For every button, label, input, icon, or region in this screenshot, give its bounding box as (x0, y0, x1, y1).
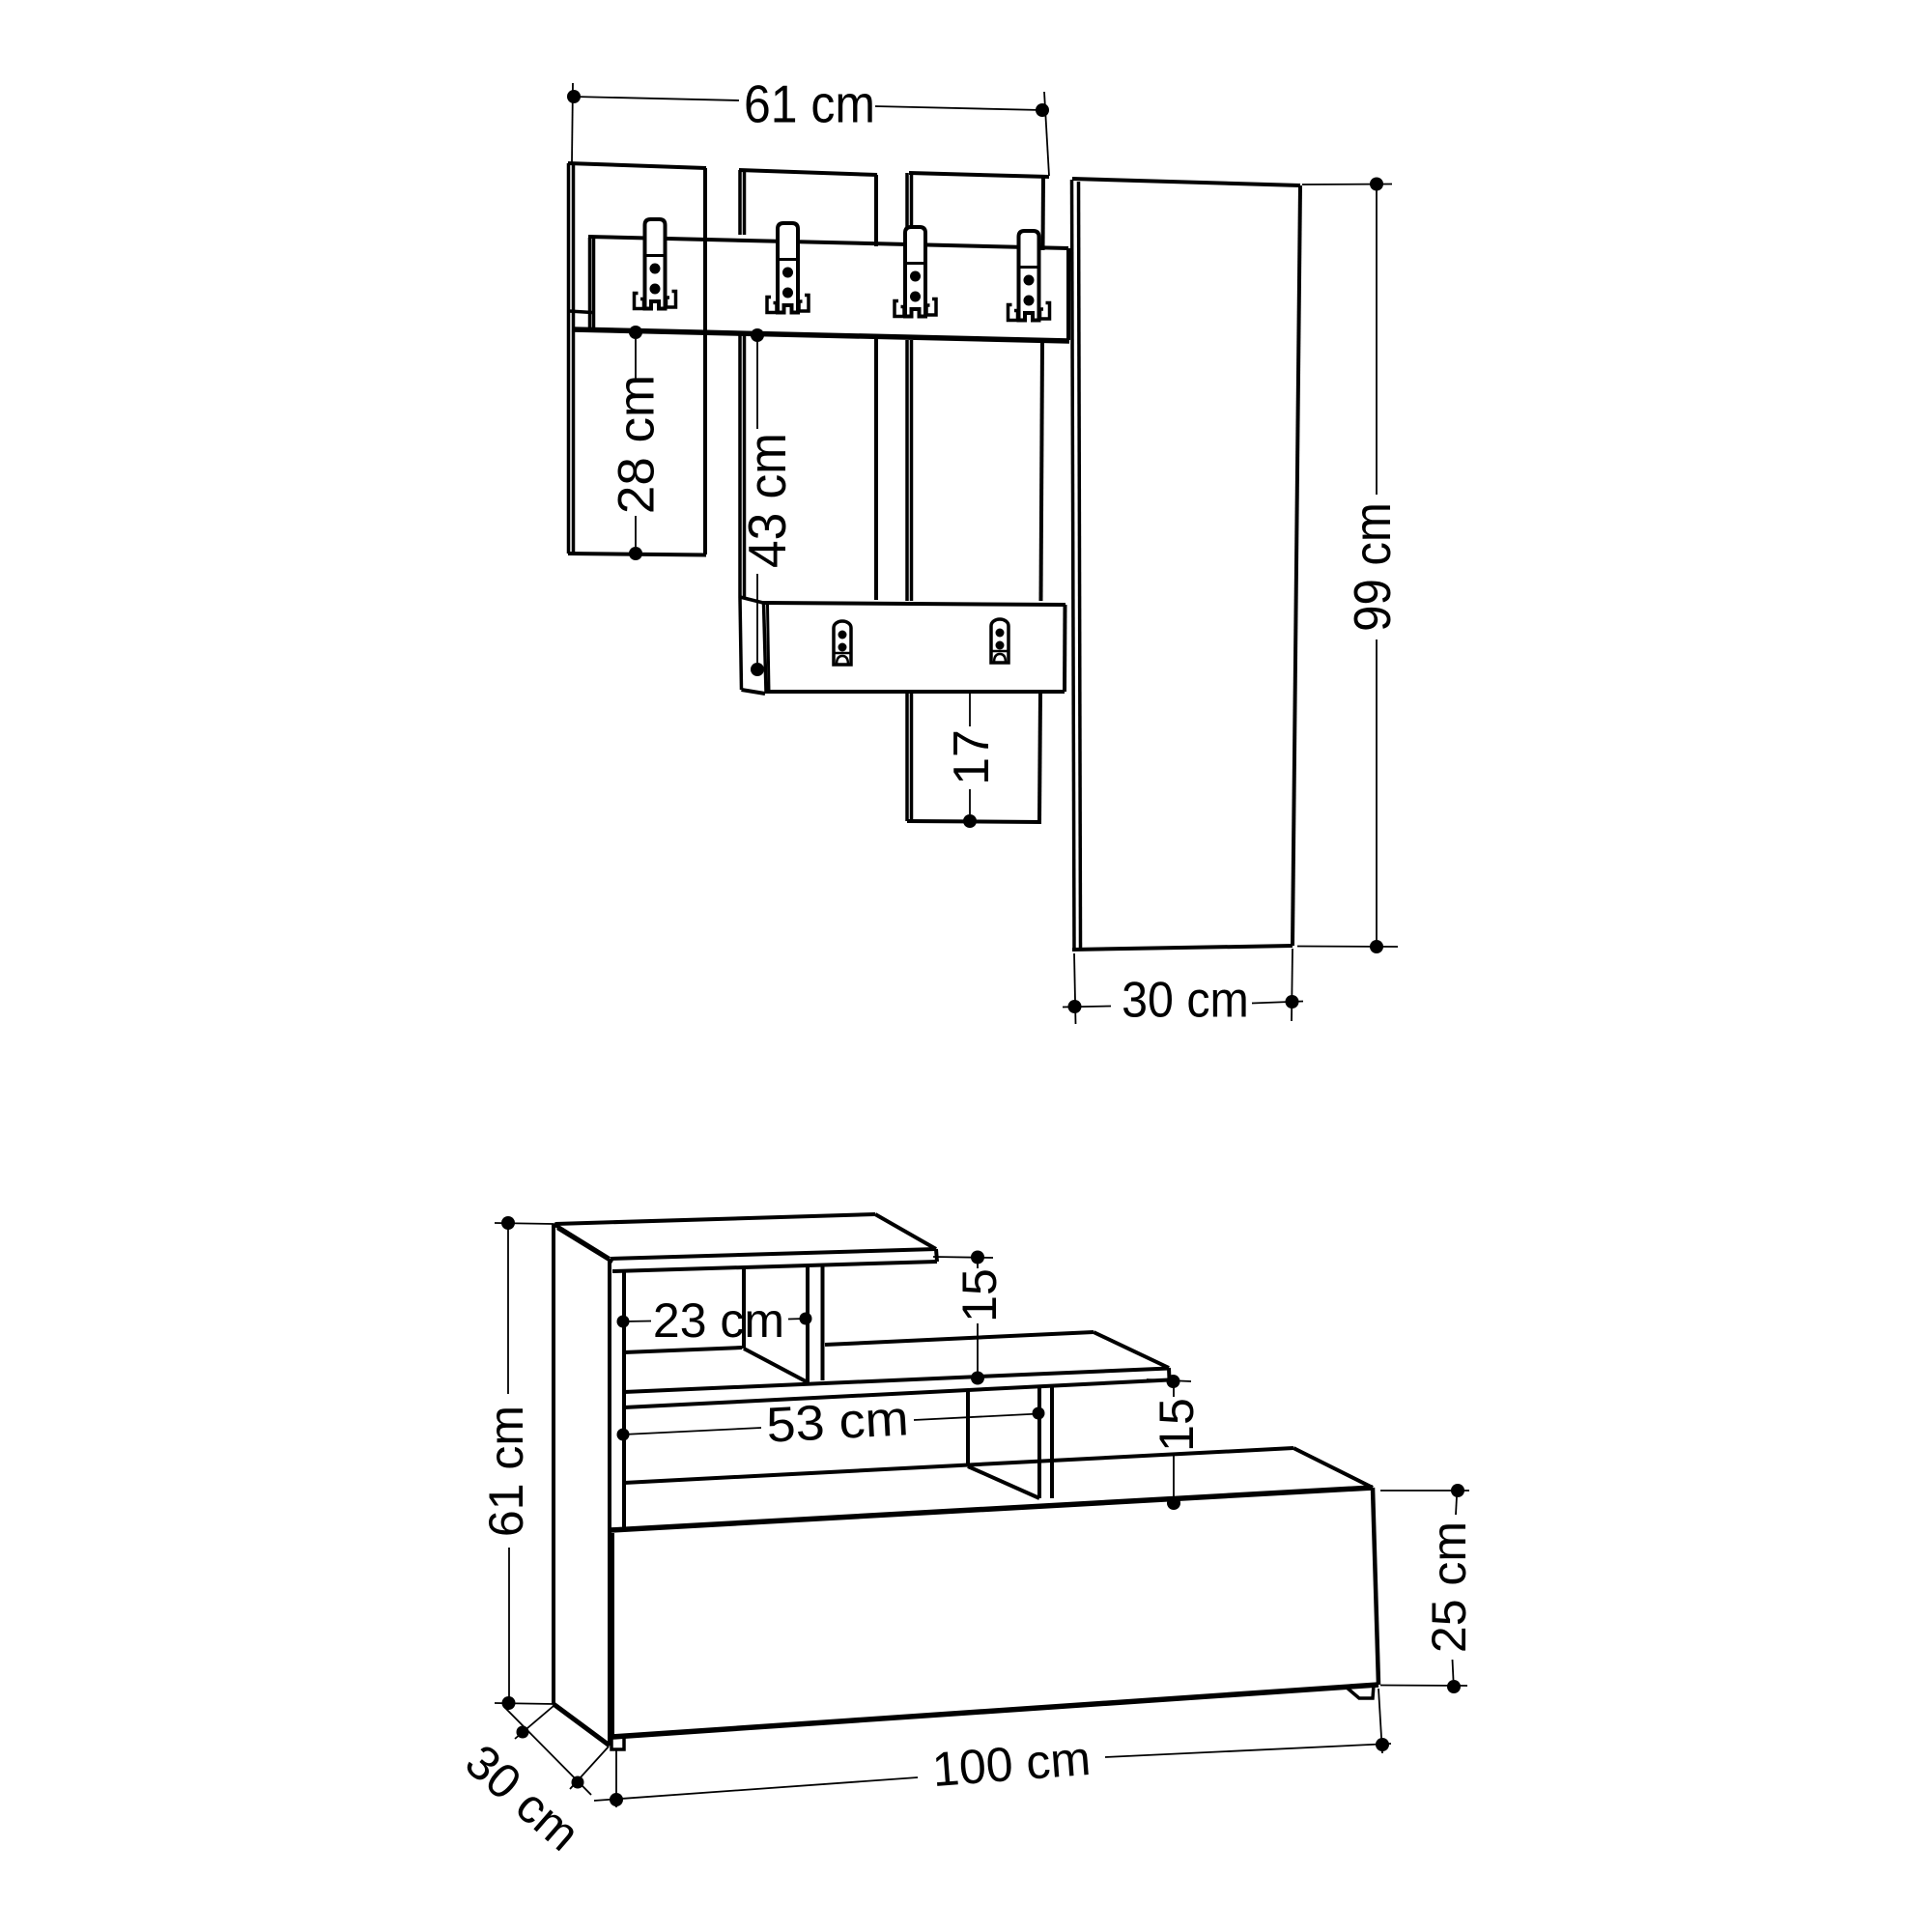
svg-text:61 cm: 61 cm (744, 74, 875, 134)
svg-text:43 cm: 43 cm (739, 433, 798, 568)
svg-text:15: 15 (1150, 1398, 1204, 1452)
svg-text:23 cm: 23 cm (653, 1293, 784, 1348)
svg-text:17: 17 (944, 729, 1000, 785)
svg-text:28 cm: 28 cm (609, 375, 666, 514)
svg-text:15: 15 (952, 1268, 1007, 1322)
svg-text:99 cm: 99 cm (1343, 502, 1402, 632)
svg-text:61 cm: 61 cm (479, 1406, 533, 1537)
svg-text:30 cm: 30 cm (1122, 972, 1249, 1028)
svg-text:53 cm: 53 cm (765, 1391, 910, 1454)
svg-text:25 cm: 25 cm (1422, 1521, 1476, 1653)
